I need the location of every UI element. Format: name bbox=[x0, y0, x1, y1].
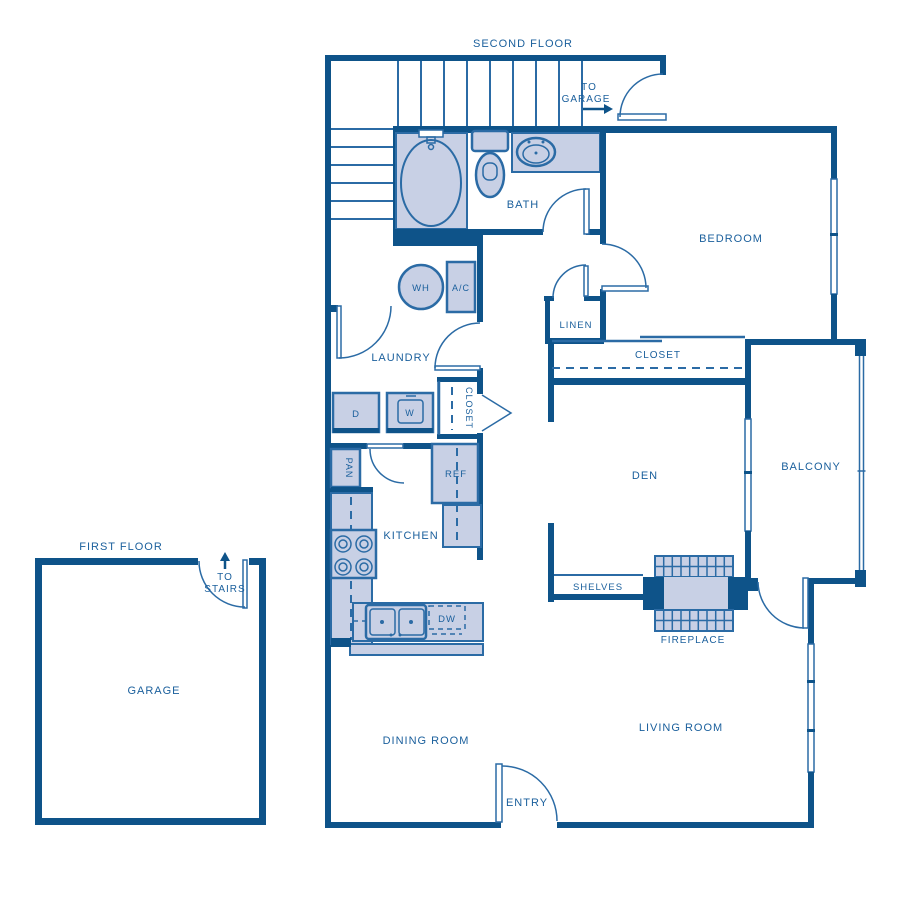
wall-segment bbox=[808, 578, 814, 644]
water-heater-label: WH bbox=[412, 283, 430, 294]
first-floor-title: FIRST FLOOR bbox=[79, 541, 163, 553]
wall-segment bbox=[393, 229, 483, 246]
window-mullion bbox=[807, 680, 815, 683]
toilet-bowl bbox=[476, 153, 504, 197]
wall-segment bbox=[660, 55, 666, 75]
den-room: DEN bbox=[548, 385, 658, 602]
door-leaf bbox=[584, 266, 588, 296]
wall-segment bbox=[35, 558, 42, 825]
bedroom-door bbox=[602, 244, 648, 291]
ac-unit-label: A/C bbox=[452, 283, 470, 293]
to-garage-door bbox=[618, 74, 666, 120]
toilet-tank bbox=[472, 131, 508, 151]
door-arc bbox=[553, 265, 586, 298]
stair-treads-left bbox=[331, 129, 393, 219]
bathroom-sink-icon bbox=[517, 138, 555, 166]
door-arc bbox=[758, 582, 804, 628]
wall-segment bbox=[831, 294, 837, 345]
laundry-door bbox=[435, 323, 480, 370]
hall-closet-label: CLOSET bbox=[464, 387, 474, 429]
bedroom-closet: CLOSET bbox=[548, 337, 745, 385]
wall-segment bbox=[831, 126, 837, 179]
den-window bbox=[745, 419, 751, 531]
wall-segment bbox=[548, 594, 643, 600]
sink-drain bbox=[380, 620, 384, 624]
wall-segment bbox=[808, 578, 860, 584]
shelves-label: SHELVES bbox=[573, 582, 623, 593]
wall-segment bbox=[548, 378, 745, 385]
window-mullion bbox=[744, 471, 752, 474]
wall-segment bbox=[545, 296, 550, 344]
second-floor-title: SECOND FLOOR bbox=[473, 38, 573, 50]
garage-label: GARAGE bbox=[127, 685, 180, 697]
door-leaf bbox=[435, 366, 480, 370]
kitchen-room: PAN DW bbox=[331, 443, 483, 655]
wall-segment bbox=[331, 638, 351, 647]
to-stairs-sign: TO STAIRS bbox=[204, 552, 245, 595]
washer-label: W bbox=[405, 408, 415, 418]
to-stairs-line1: TO bbox=[217, 572, 233, 583]
balcony-door bbox=[758, 578, 808, 628]
floor-plan-drawing: SECOND FLOOR FIRST FLOOR TO GARAGE bbox=[0, 0, 900, 900]
entry-label: ENTRY bbox=[506, 797, 548, 809]
right-arrow-icon bbox=[604, 104, 613, 114]
bedroom-label: BEDROOM bbox=[699, 233, 763, 245]
wall-segment bbox=[808, 772, 814, 828]
wall-segment bbox=[748, 578, 758, 591]
wall-segment bbox=[259, 558, 266, 825]
door-arc bbox=[620, 74, 663, 117]
laundry-label: LAUNDRY bbox=[371, 352, 430, 364]
to-garage-line2: GARAGE bbox=[562, 94, 611, 105]
ac-unit-icon: A/C bbox=[447, 262, 475, 312]
door-arc bbox=[339, 306, 391, 358]
wall-segment bbox=[325, 55, 666, 61]
hall-closet: CLOSET bbox=[437, 377, 511, 439]
wall-segment bbox=[477, 246, 483, 322]
garage-plan: TO STAIRS GARAGE bbox=[35, 552, 266, 825]
shelves: SHELVES bbox=[548, 575, 643, 600]
wall-segment bbox=[483, 229, 543, 235]
wall-segment bbox=[393, 126, 837, 133]
bedroom-room: BEDROOM bbox=[600, 126, 763, 341]
bedroom-closet-label: CLOSET bbox=[635, 350, 681, 361]
toilet-icon bbox=[472, 131, 508, 197]
window-mullion bbox=[830, 233, 838, 236]
bedroom-window bbox=[831, 179, 837, 294]
tub-basin bbox=[401, 140, 461, 226]
wall-segment bbox=[548, 385, 554, 422]
stair-treads-upper bbox=[398, 61, 582, 126]
bath-label: BATH bbox=[507, 199, 540, 211]
door-arc bbox=[502, 766, 557, 821]
door-arc bbox=[602, 244, 646, 288]
firebox bbox=[664, 577, 728, 610]
wall-segment bbox=[437, 434, 483, 439]
pantry-label: PAN bbox=[344, 458, 354, 479]
sink-drain bbox=[409, 620, 413, 624]
wall-segment bbox=[325, 822, 501, 828]
living-dining: LIVING ROOM DINING ROOM ENTRY bbox=[383, 722, 724, 822]
door-leaf bbox=[496, 764, 502, 822]
to-garage-line1: TO bbox=[581, 82, 597, 93]
wall-segment bbox=[557, 822, 814, 828]
firebox-side bbox=[643, 577, 664, 610]
door-leaf bbox=[584, 189, 589, 234]
door-arc bbox=[543, 189, 586, 232]
sink-tap bbox=[399, 634, 402, 637]
wall-segment bbox=[745, 531, 751, 583]
pantry-door bbox=[367, 444, 404, 483]
balcony-area: BALCONY bbox=[744, 339, 866, 628]
wall-segment bbox=[600, 126, 606, 244]
dryer-base bbox=[333, 428, 379, 433]
window-mullion bbox=[807, 729, 815, 732]
wall-segment bbox=[548, 339, 554, 378]
balcony-label: BALCONY bbox=[781, 461, 841, 473]
wall-segment bbox=[437, 377, 483, 382]
wall-segment bbox=[748, 339, 862, 345]
dryer-label: D bbox=[352, 409, 360, 420]
door-leaf bbox=[602, 286, 648, 291]
pantry: PAN bbox=[331, 449, 373, 493]
dishwasher-label: DW bbox=[438, 614, 456, 625]
entry-door bbox=[496, 764, 557, 822]
sink-tap bbox=[390, 634, 393, 637]
living-room-window bbox=[808, 644, 814, 772]
to-garage-sign: TO GARAGE bbox=[562, 82, 613, 114]
up-arrow-icon bbox=[220, 552, 230, 561]
balcony-open-edge bbox=[860, 356, 864, 570]
sink-tap bbox=[528, 141, 531, 144]
kitchen-label: KITCHEN bbox=[383, 530, 438, 542]
counter-by-ref bbox=[443, 505, 481, 547]
stove-icon bbox=[331, 530, 376, 578]
dining-room-label: DINING ROOM bbox=[383, 735, 470, 747]
sink-tap bbox=[542, 141, 545, 144]
door-sill bbox=[618, 114, 666, 120]
den-label: DEN bbox=[632, 470, 658, 482]
door-leaf bbox=[803, 578, 808, 628]
door-arc bbox=[370, 449, 404, 483]
door-leaf bbox=[337, 306, 341, 358]
washer-base bbox=[387, 428, 433, 433]
firebox-side bbox=[728, 577, 748, 610]
dryer-icon: D bbox=[333, 393, 379, 433]
linen-label: LINEN bbox=[560, 320, 593, 331]
floor-plan-page: SECOND FLOOR FIRST FLOOR TO GARAGE bbox=[0, 0, 900, 900]
fireplace-icon: FIREPLACE bbox=[643, 556, 748, 646]
linen-door bbox=[553, 265, 588, 298]
door-leaf bbox=[367, 444, 403, 448]
wall-segment bbox=[325, 305, 338, 312]
tub-faucet-deck bbox=[419, 130, 443, 137]
fireplace-label: FIREPLACE bbox=[661, 635, 726, 646]
sink-drain bbox=[535, 152, 538, 155]
linen-closet: LINEN bbox=[544, 265, 604, 344]
wall-segment bbox=[548, 523, 554, 602]
door-arc bbox=[435, 323, 480, 368]
water-heater-icon: WH bbox=[399, 265, 443, 309]
wall-segment bbox=[325, 55, 331, 828]
sink-frame bbox=[366, 605, 426, 639]
bath-room: BATH bbox=[393, 130, 602, 246]
bath-door bbox=[543, 189, 589, 234]
wall-segment bbox=[855, 339, 866, 356]
wall-segment bbox=[745, 339, 751, 419]
hall-closet-door bbox=[482, 395, 511, 431]
stairs-door bbox=[325, 305, 391, 358]
washer-icon: W bbox=[387, 393, 433, 433]
living-room-label: LIVING ROOM bbox=[639, 722, 723, 734]
to-stairs-line2: STAIRS bbox=[204, 584, 245, 595]
wall-segment bbox=[35, 558, 198, 565]
kitchen-sink-icon bbox=[366, 605, 426, 639]
refrigerator-icon: REF bbox=[432, 444, 481, 547]
counter-edge bbox=[350, 644, 483, 655]
closet-side bbox=[438, 382, 440, 434]
wall-segment bbox=[35, 818, 266, 825]
